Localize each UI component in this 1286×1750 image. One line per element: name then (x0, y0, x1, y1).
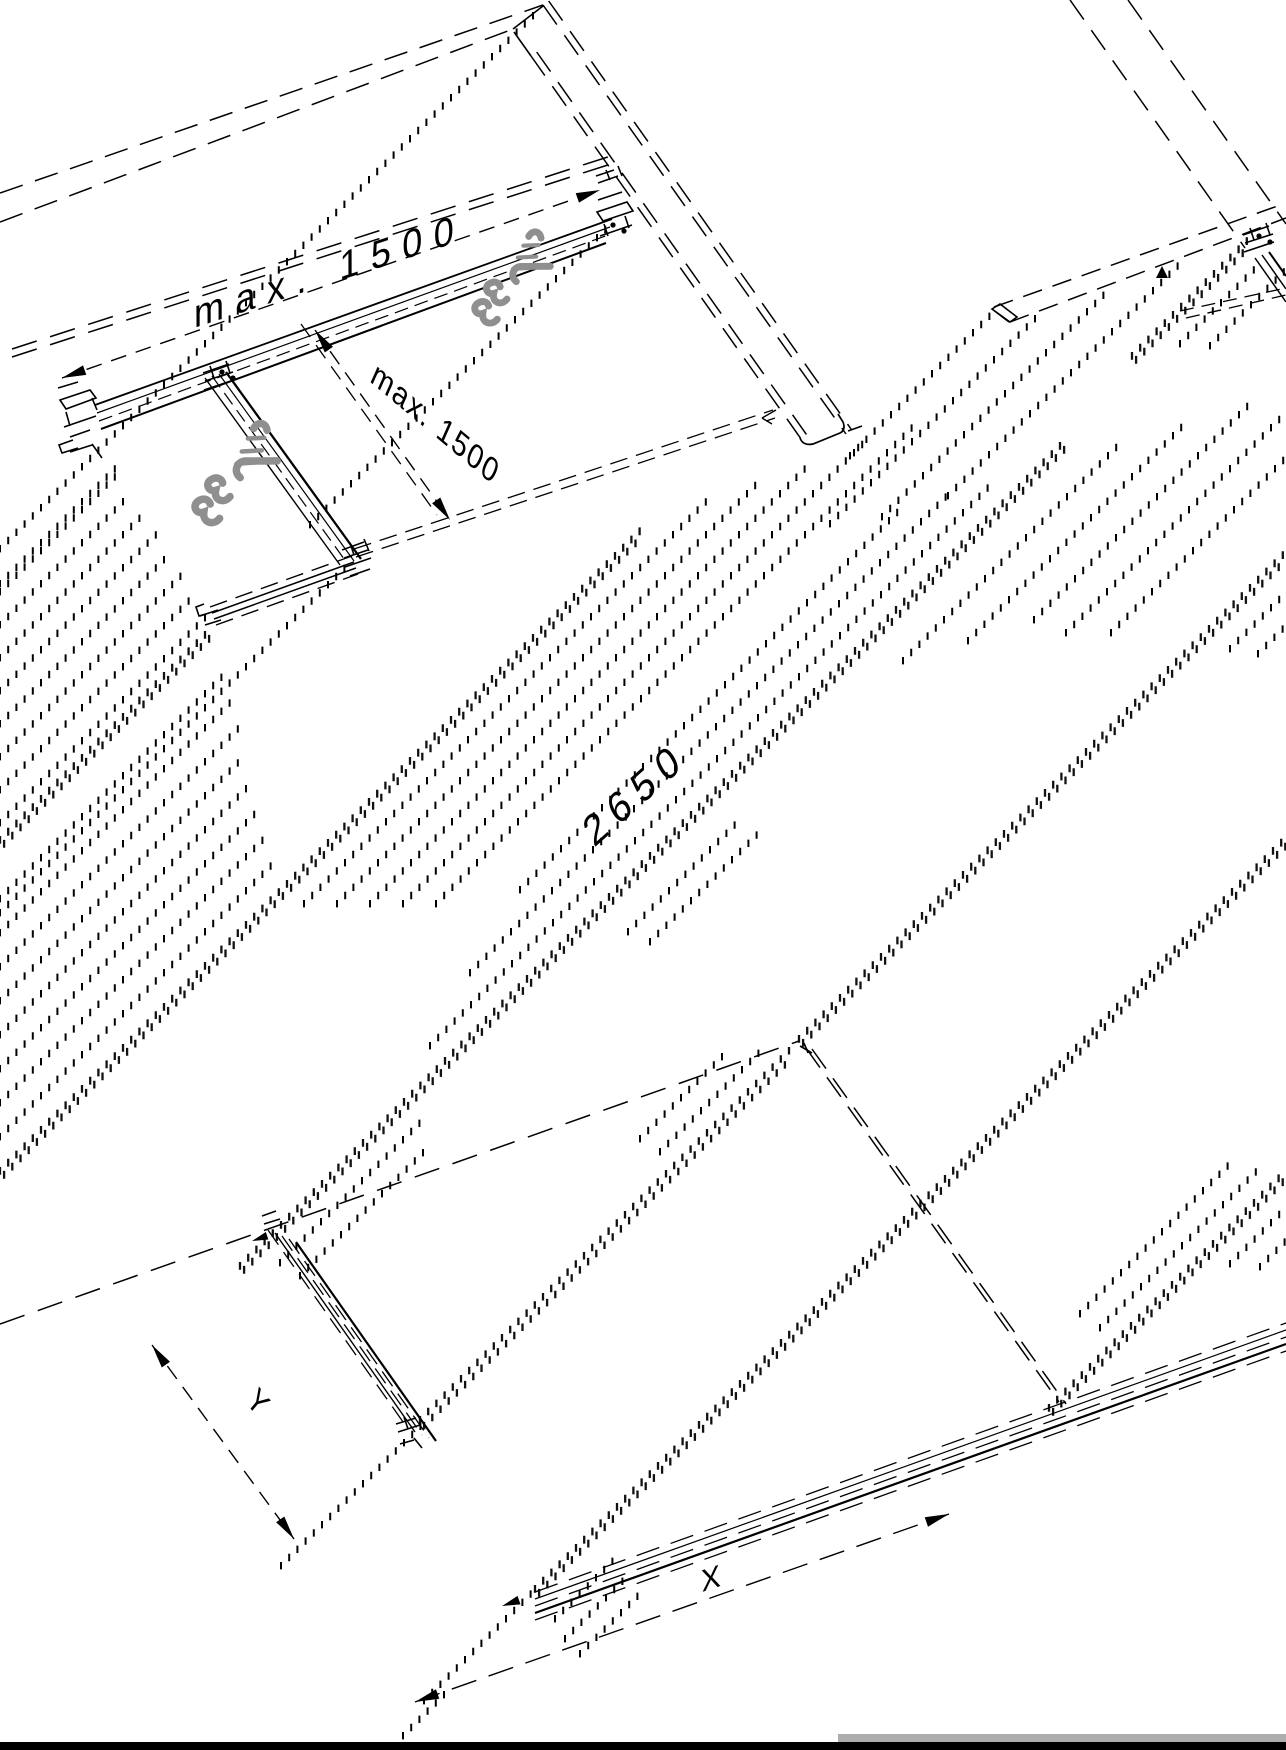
svg-text:X: X (700, 1558, 721, 1599)
